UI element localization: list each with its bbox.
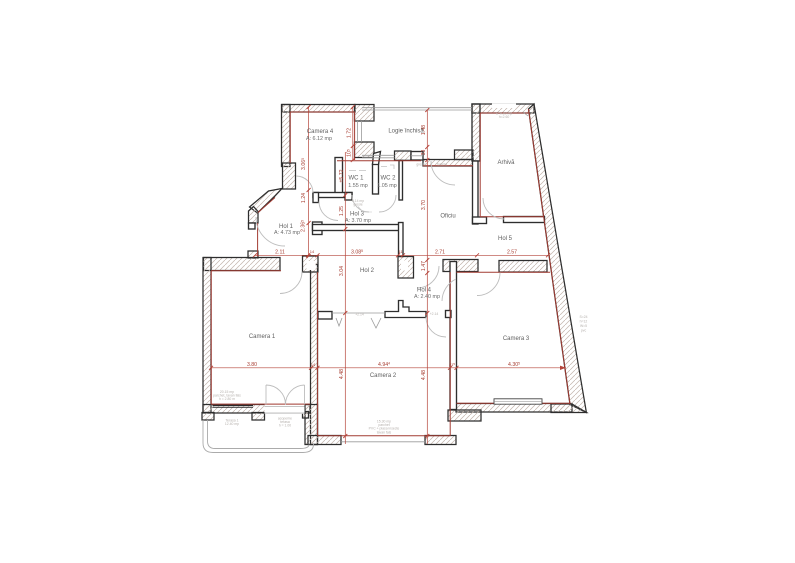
svg-text:S=24: S=24 — [579, 315, 587, 319]
svg-text:2.57: 2.57 — [507, 249, 517, 255]
svg-text:h = 1.00: h = 1.00 — [279, 424, 291, 428]
svg-text:1.47: 1.47 — [421, 261, 427, 271]
svg-text:h=2.60: h=2.60 — [499, 115, 510, 119]
svg-text:Hol 3: Hol 3 — [350, 212, 365, 218]
svg-text:Hol 5: Hol 5 — [498, 236, 513, 242]
svg-text:gresie: gresie — [416, 163, 425, 167]
svg-text:WC 2: WC 2 — [381, 176, 397, 182]
svg-text:12.40 mp: 12.40 mp — [225, 422, 239, 426]
svg-text:Camera 4: Camera 4 — [307, 129, 334, 135]
svg-text:tavan fals: tavan fals — [377, 430, 392, 434]
svg-text:A: 4.73 mp: A: 4.73 mp — [274, 230, 300, 236]
svg-text:1.05 mp: 1.05 mp — [377, 183, 396, 189]
svg-text:Hol 4: Hol 4 — [417, 288, 432, 294]
svg-text:Logie închisă: Logie închisă — [388, 129, 424, 135]
svg-text:Camera 1: Camera 1 — [249, 334, 276, 340]
svg-text:1.72: 1.72 — [347, 128, 353, 138]
svg-text:Oficiu: Oficiu — [440, 214, 455, 220]
svg-text:±5.72: ±5.72 — [339, 169, 345, 182]
svg-text:Camera 3: Camera 3 — [503, 336, 530, 342]
svg-text:faianta: faianta — [437, 163, 447, 167]
svg-text:14: 14 — [310, 249, 315, 254]
svg-text:WC 1: WC 1 — [349, 176, 365, 182]
svg-text:1.25: 1.25 — [339, 206, 345, 216]
svg-text:h=12: h=12 — [580, 320, 588, 324]
svg-text:+2.14: +2.14 — [430, 312, 439, 316]
svg-text:3.04: 3.04 — [339, 266, 345, 276]
svg-text:gresie: gresie — [353, 202, 362, 206]
svg-text:2.11: 2.11 — [275, 250, 285, 256]
svg-text:3.80: 3.80 — [247, 362, 257, 368]
svg-text:+2.14: +2.14 — [355, 313, 364, 317]
svg-text:A: 3.70 mp: A: 3.70 mp — [345, 218, 371, 224]
svg-text:4.48: 4.48 — [339, 369, 345, 379]
svg-text:1.55 mp: 1.55 mp — [348, 183, 367, 189]
svg-text:h = 2.80 m: h = 2.80 m — [219, 397, 235, 401]
svg-text:Arhivă: Arhivă — [497, 160, 515, 166]
svg-text:pvc: pvc — [581, 329, 587, 333]
svg-text:Hol 2: Hol 2 — [360, 268, 375, 274]
svg-text:2.71: 2.71 — [435, 249, 445, 255]
svg-text:14: 14 — [311, 362, 316, 367]
svg-text:33: 33 — [421, 150, 427, 156]
svg-text:1.24: 1.24 — [301, 193, 307, 203]
svg-text:3.70: 3.70 — [421, 200, 427, 210]
svg-text:Camera 2: Camera 2 — [370, 373, 397, 379]
svg-text:4.48: 4.48 — [421, 370, 427, 380]
svg-text:A: 2.40 mp: A: 2.40 mp — [414, 294, 440, 300]
svg-text:W=5: W=5 — [580, 324, 587, 328]
svg-text:A: 6.12 mp: A: 6.12 mp — [306, 136, 332, 142]
